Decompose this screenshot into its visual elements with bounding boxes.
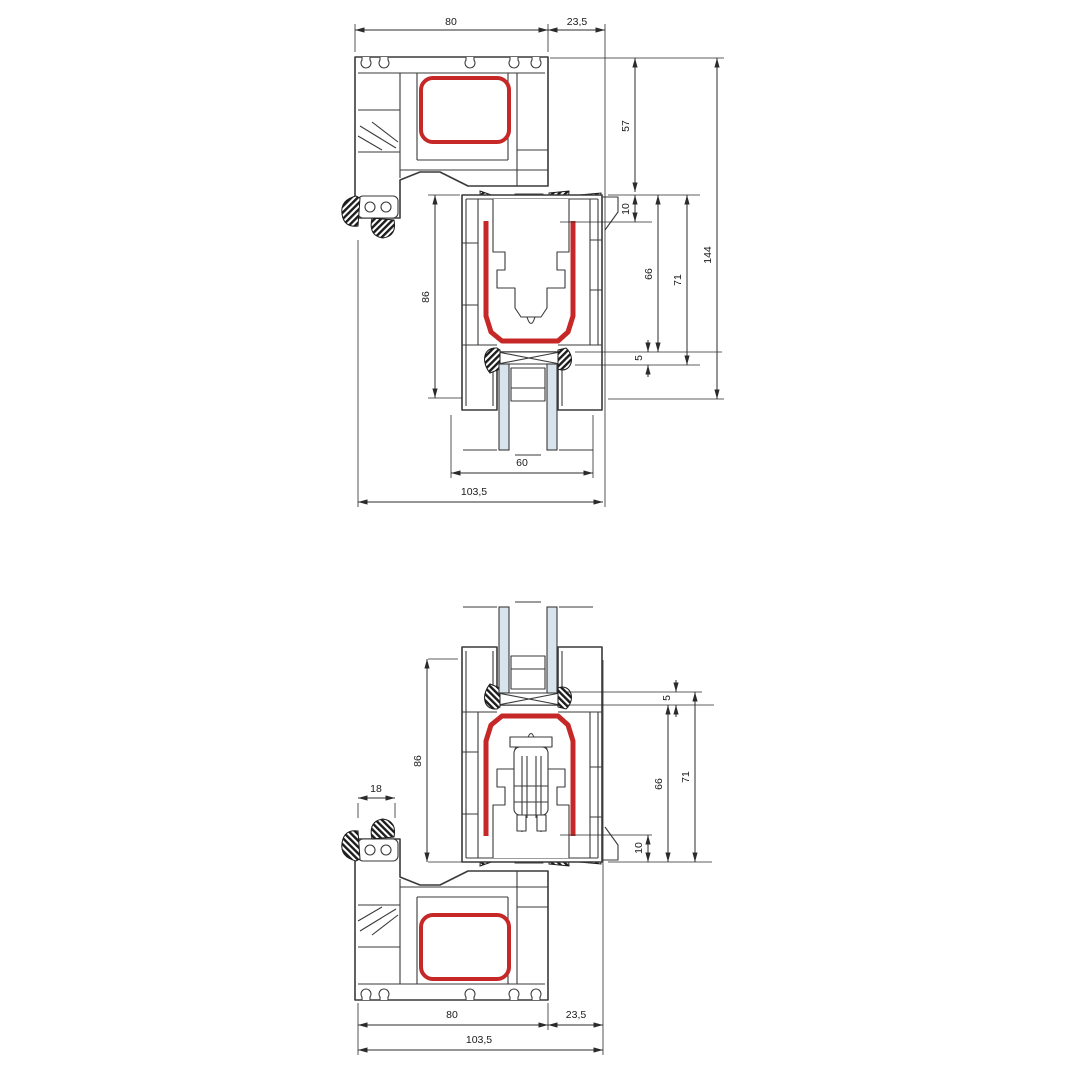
dim-label-rebate-full: 71: [680, 771, 692, 783]
dim-label-bead-width: 18: [370, 783, 382, 795]
dim-label-frame-depth: 80: [445, 16, 457, 28]
dim-label-sash-overhang: 23,5: [566, 1009, 587, 1021]
dim-label-seal-overlap: 10: [633, 842, 645, 854]
dim-label-glazing-block: 5: [633, 355, 645, 361]
dim-label-glazing-block: 5: [661, 695, 673, 701]
dim-label-sash-overhang: 23,5: [567, 16, 588, 28]
dim-label-seal-overlap: 10: [620, 203, 632, 215]
drawing-page: 80 23,5 57 10 66 71 144 5 86 60 103,5: [0, 0, 1080, 1080]
dim-label-sash-depth: 86: [412, 755, 424, 767]
dim-label-rebate-depth: 66: [643, 268, 655, 280]
bottom-section-drawing: 18 86 5 66 71 10 80 23,5 103,5: [342, 602, 714, 1055]
dim-label-overall-height: 144: [702, 246, 714, 264]
dim-label-rebate-full: 71: [672, 274, 684, 286]
dim-label-overall-depth: 103,5: [466, 1034, 492, 1046]
profile-cross-section-drawing: 80 23,5 57 10 66 71 144 5 86 60 103,5: [0, 0, 1080, 1080]
top-section-drawing: 80 23,5 57 10 66 71 144 5 86 60 103,5: [342, 16, 724, 507]
dim-label-rebate-depth: 66: [653, 778, 665, 790]
dim-label-sash-depth: 86: [420, 291, 432, 303]
dim-label-glazing-width: 60: [516, 457, 528, 469]
dim-label-overall-depth: 103,5: [461, 486, 487, 498]
dim-label-frame-face: 57: [620, 120, 632, 132]
dim-label-frame-depth: 80: [446, 1009, 458, 1021]
